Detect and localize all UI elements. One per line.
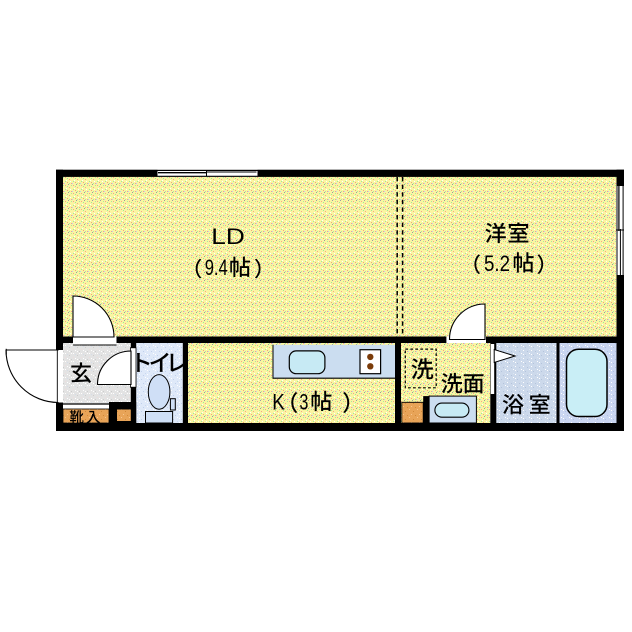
svg-text:5.2: 5.2 [484, 251, 510, 276]
svg-text:K: K [272, 389, 285, 414]
svg-text:3: 3 [299, 389, 308, 414]
svg-text:9.4: 9.4 [205, 255, 228, 280]
svg-text:LD: LD [211, 224, 245, 249]
